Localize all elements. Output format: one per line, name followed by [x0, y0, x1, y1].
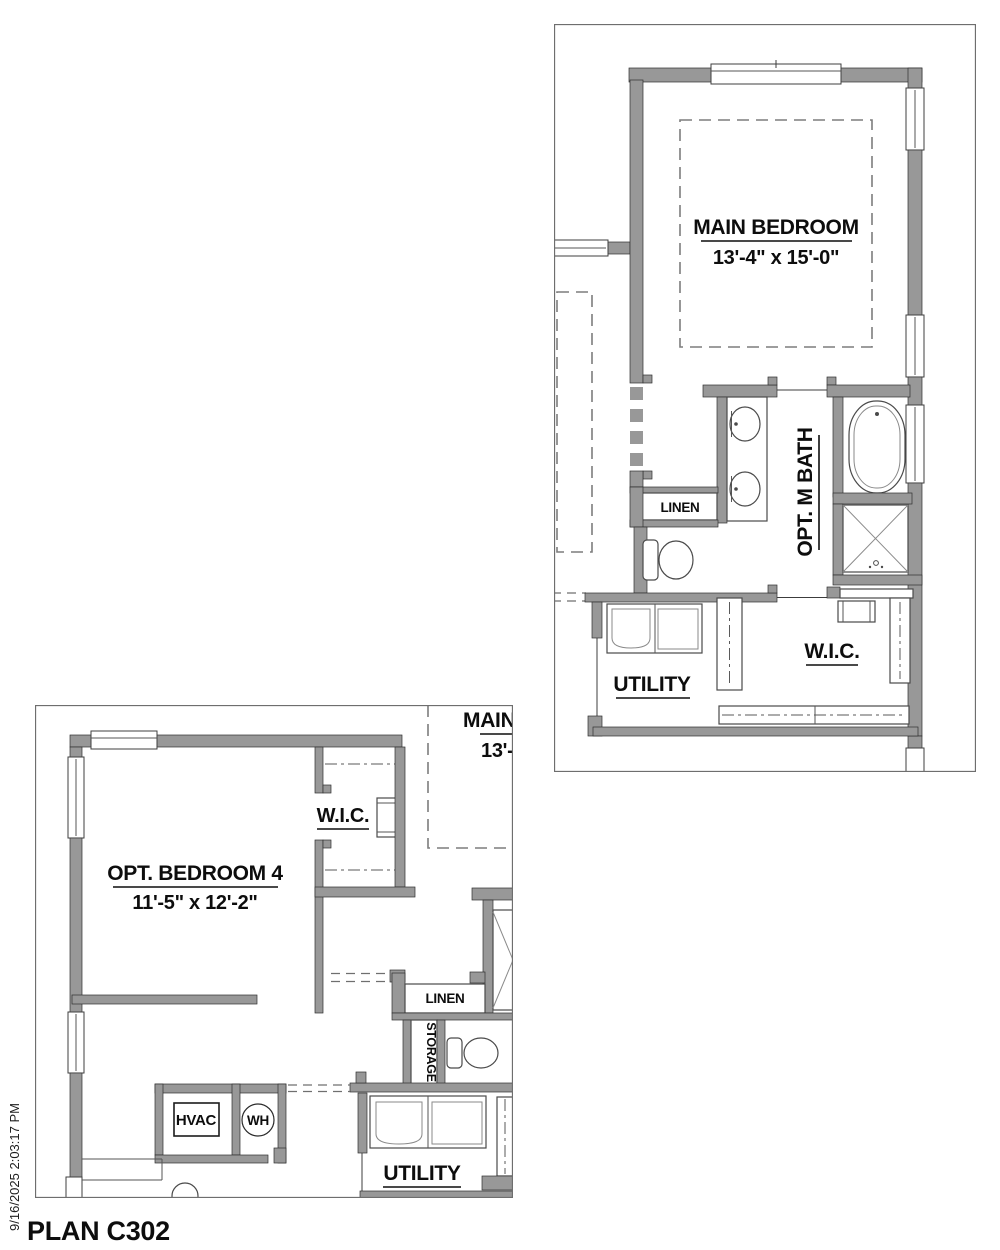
plan-title: PLAN C302: [27, 1216, 170, 1246]
washer-dryer-icon: [607, 604, 702, 653]
opt-bedroom4-dimensions: 11'-5" x 12'-2": [132, 892, 257, 914]
main-bedroom-dimensions: 13'-4" x 15'-0": [713, 247, 839, 269]
window: [66, 1177, 82, 1198]
wall-left-partial: [552, 240, 630, 256]
wall: [392, 973, 405, 1013]
drain-icon: [172, 1183, 198, 1209]
storage-label: STORAGE: [424, 1022, 438, 1082]
window-bedroom-top: [711, 60, 841, 84]
utility-label: UTILITY: [613, 673, 691, 696]
linen-label: LINEN: [660, 500, 699, 515]
wall-bedroom4-bottom: [72, 995, 257, 1004]
opt-bedroom4-label: OPT. BEDROOM 4: [107, 862, 283, 885]
hvac-label: HVAC: [176, 1112, 217, 1129]
wic-label: W.I.C.: [804, 640, 859, 663]
linen-label: LINEN: [425, 991, 464, 1006]
wic-label: W.I.C.: [317, 805, 370, 827]
print-timestamp: 9/16/2025 2:03:17 PM: [7, 1103, 22, 1231]
sink-icon: [730, 472, 760, 506]
toilet-icon: [643, 540, 693, 580]
washer-dryer-icon: [370, 1096, 486, 1148]
window-bedroom4-top: [91, 731, 157, 749]
wall-bottom: [593, 727, 918, 736]
floor-plan-drawing: MAIN BEDROOM 13'-4" x 15'-0": [0, 0, 1000, 1250]
main-bedroom-label: MAIN BEDROOM: [693, 216, 859, 239]
sink-icon: [730, 407, 760, 441]
opt-m-bath-label: OPT. M BATH: [794, 427, 817, 556]
view-main-bedroom-bath: MAIN BEDROOM 13'-4" x 15'-0": [552, 24, 976, 774]
floor-plan-page: MAIN BEDROOM 13'-4" x 15'-0": [0, 0, 1000, 1250]
toilet-icon: [447, 1038, 498, 1068]
utility-label: UTILITY: [383, 1162, 461, 1185]
window: [906, 748, 924, 774]
view-opt-bedroom-4: OPT. BEDROOM 4 11'-5" x 12'-2" W.I.C. MA…: [35, 705, 629, 1209]
vanity: [717, 397, 767, 523]
wh-label: WH: [247, 1113, 269, 1128]
wall: [350, 1083, 513, 1092]
